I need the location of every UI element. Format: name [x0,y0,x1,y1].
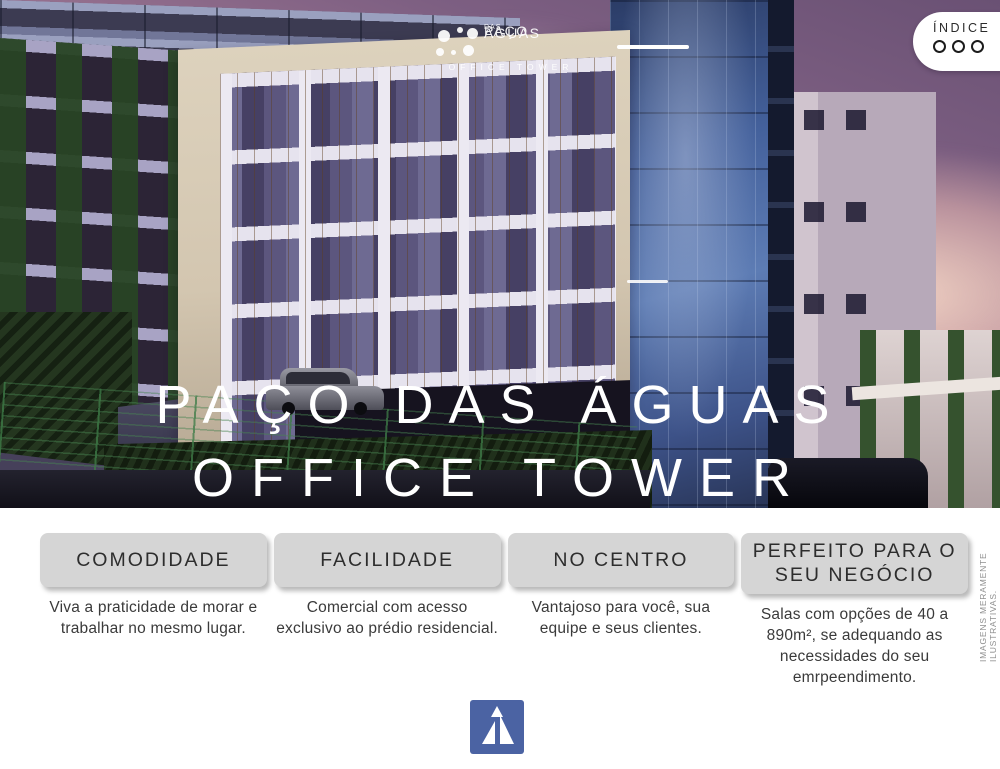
feature-title-box: FACILIDADE [274,533,501,587]
index-dot[interactable] [971,40,984,53]
index-nav-pill[interactable]: ÍNDICE [913,12,1000,71]
index-dot[interactable] [933,40,946,53]
decorative-dash [627,280,668,283]
feature-facilidade: FACILIDADE Comercial com acesso exclusiv… [274,533,501,688]
feature-perfeito-negocio: PERFEITO PARA O SEU NEGÓCIO Salas com op… [741,533,968,688]
brand-wordmark: PAÇO DAS ÁGUAS [484,24,584,40]
building-render-image: PAÇO DAS ÁGUAS OFFICE TOWER ÍNDICE PAÇO … [0,0,1000,508]
brochure-page: PAÇO DAS ÁGUAS OFFICE TOWER ÍNDICE PAÇO … [0,0,1000,769]
feature-description: Salas com opções de 40 a 890m², se adequ… [741,605,968,689]
triangle-a-logo-icon [470,700,524,754]
feature-no-centro: NO CENTRO Vantajoso para você, sua equip… [508,533,735,688]
feature-title: PERFEITO PARA O SEU NEGÓCIO [751,539,958,588]
feature-comodidade: COMODIDADE Viva a praticidade de morar e… [40,533,267,688]
brand-logo: PAÇO DAS ÁGUAS OFFICE TOWER [436,24,586,72]
feature-title-box: COMODIDADE [40,533,267,587]
feature-title: FACILIDADE [320,548,454,572]
brand-subtitle: OFFICE TOWER [436,62,586,72]
feature-description: Comercial com acesso exclusivo ao prédio… [274,598,501,640]
feature-description: Viva a praticidade de morar e trabalhar … [40,598,267,640]
feature-list: COMODIDADE Viva a praticidade de morar e… [40,533,968,688]
page-title-line2: OFFICE TOWER [0,451,1000,505]
image-disclaimer-caption: IMAGENS MERAMENTE ILUSTRATIVAS. [978,512,998,662]
feature-title: NO CENTRO [553,548,688,572]
feature-description: Vantajoso para você, sua equipe e seus c… [508,598,735,640]
feature-title: COMODIDADE [76,548,230,572]
page-title-line1: PAÇO DAS ÁGUAS [0,378,1000,432]
index-label: ÍNDICE [933,21,1000,35]
index-page-dots [933,40,1000,53]
developer-logo [470,700,524,754]
feature-title-box: PERFEITO PARA O SEU NEGÓCIO [741,533,968,594]
feature-title-box: NO CENTRO [508,533,735,587]
logo-dots-icon [436,26,480,60]
decorative-dash [617,45,689,49]
index-dot[interactable] [952,40,965,53]
